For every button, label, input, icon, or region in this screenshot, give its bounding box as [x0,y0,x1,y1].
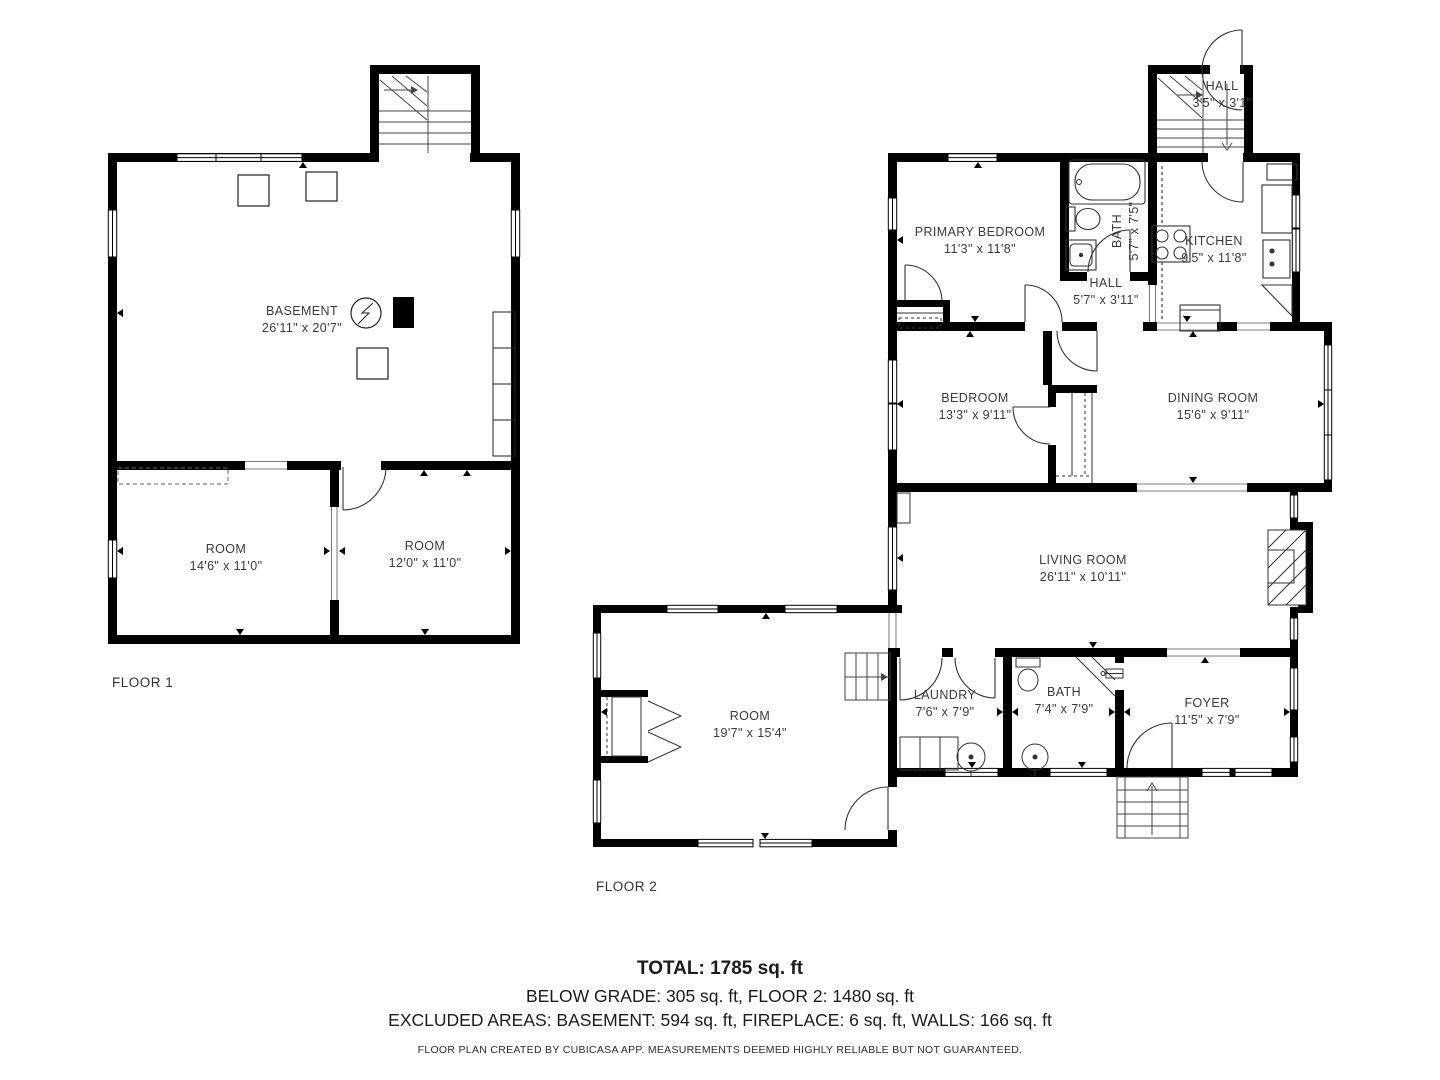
area-breakdown-text: BELOW GRADE: 305 sq. ft, FLOOR 2: 1480 s… [0,986,1440,1007]
floor2-opening-lines [889,285,1270,656]
floor1-openings [245,461,381,601]
room-label-bath-lower: BATH 7'4" x 7'9" [1034,684,1093,718]
bedroom-closet [1056,393,1092,483]
floor1-label: FLOOR 1 [112,675,173,690]
room-label-hall-mid: HALL 5'7" x 3'11" [1073,275,1138,309]
floor1-windows [108,154,519,578]
floor1-stairs [379,76,471,153]
room-closet [607,697,681,762]
room-label-laundry: LAUNDRY 7'6" x 7'9" [914,687,976,721]
room-label-f2-room: ROOM 19'7" x 15'4" [713,708,787,742]
room-label-living-room: LIVING ROOM 26'11" x 10'11" [1039,552,1127,586]
floor2-label: FLOOR 2 [596,879,657,894]
fireplace [1268,530,1306,605]
room-label-dining-room: DINING ROOM 15'6" x 9'11" [1168,390,1259,424]
room-label-bath-upper: BATH 5'7" x 7'5" [1109,201,1143,260]
room-label-hall-upper: HALL 3'5" x 3'1" [1192,78,1251,112]
room-label-kitchen: KITCHEN 9'5" x 11'8" [1181,233,1246,267]
room-label-foyer: FOYER 11'5" x 7'9" [1174,695,1239,729]
floor-plan-page: BASEMENT 26'11" x 20'7" ROOM 14'6" x 11'… [0,0,1440,1080]
excluded-areas-text: EXCLUDED AREAS: BASEMENT: 594 sq. ft, FI… [0,1010,1440,1031]
exterior-stairs [1117,777,1188,838]
room-label-bedroom: BEDROOM 13'3" x 9'11" [939,390,1012,424]
room-stairs [845,653,890,700]
total-area-text: TOTAL: 1785 sq. ft [0,958,1440,980]
room-label-f1-room-left: ROOM 14'6" x 11'0" [190,541,263,575]
room-label-primary-bedroom: PRIMARY BEDROOM 11'3" x 11'8" [915,224,1046,258]
disclaimer-text: FLOOR PLAN CREATED BY CUBICASA APP. MEAS… [0,1044,1440,1056]
floor-plan-canvas [0,0,1440,1080]
room-label-f1-room-right: ROOM 12'0" x 11'0" [389,538,462,572]
floor2-walls [593,65,1332,847]
room-label-basement: BASEMENT 26'11" x 20'7" [262,303,342,337]
floor1-doors [118,467,386,510]
